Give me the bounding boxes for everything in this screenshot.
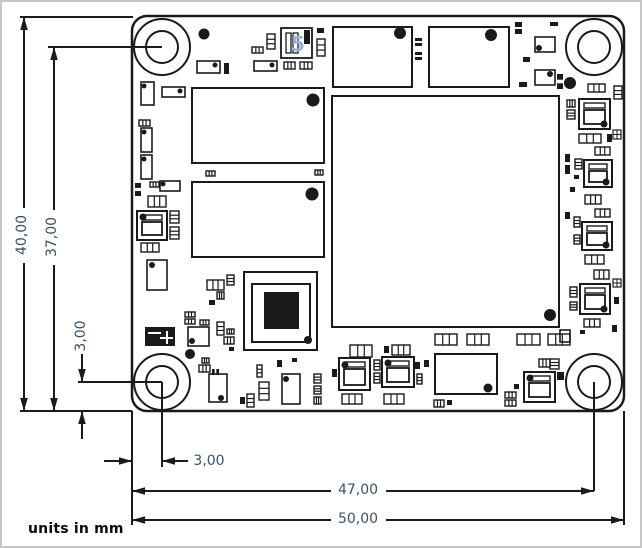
- pin1-dot: [149, 262, 155, 268]
- pin1-dot: [547, 71, 553, 77]
- pin1-dot: [304, 336, 312, 344]
- component-pad: [515, 22, 522, 27]
- via-dot: [185, 349, 195, 359]
- pin1-dot: [394, 27, 406, 39]
- ic-marking-text: 5: [291, 32, 305, 56]
- pin1-dot: [544, 309, 556, 321]
- component-pad: [574, 175, 579, 179]
- dimension-hole-width-arrow: [581, 487, 594, 495]
- component-pad: [565, 154, 570, 162]
- component-pad: [240, 397, 245, 404]
- dimension-overall-width-arrow: [132, 516, 145, 524]
- component-pad: [514, 384, 519, 389]
- component-pad: [216, 369, 219, 375]
- component-pad: [550, 22, 558, 26]
- component-pad: [447, 400, 452, 405]
- pin1-dot: [218, 395, 224, 401]
- component-pad: [515, 29, 522, 34]
- component-pad: [224, 63, 229, 74]
- pcb-dimension-drawing: 540,0037,003,003,0047,0050,00 units in m…: [0, 0, 642, 548]
- component-pad: [415, 52, 422, 55]
- dimension-overall-width-arrow: [611, 516, 624, 524]
- component-pad: [612, 325, 617, 332]
- pin1-dot: [603, 242, 610, 249]
- pin1-dot: [140, 214, 147, 221]
- component-pad: [415, 57, 422, 60]
- mounting-hole-top-right-bore: [578, 31, 610, 63]
- pin1-dot: [484, 384, 493, 393]
- dimension-hole-offset-vertical-arrow: [78, 369, 86, 382]
- pin1-dot: [161, 182, 166, 187]
- pcb-drawing-canvas: 540,0037,003,003,0047,0050,00: [2, 2, 642, 548]
- component-pad: [607, 134, 612, 142]
- dimension-label-overall-height: 40,00: [14, 215, 30, 255]
- units-note: units in mm: [28, 521, 124, 537]
- via-dot: [564, 77, 576, 89]
- pin1-dot: [142, 84, 147, 89]
- component-pad: [580, 330, 585, 334]
- component-pad: [209, 300, 215, 305]
- component-pad: [415, 38, 422, 41]
- component-pad: [292, 358, 297, 362]
- component-pad: [332, 369, 337, 377]
- component-pad: [317, 28, 324, 33]
- pin1-dot: [213, 63, 218, 68]
- component-pad: [557, 372, 564, 380]
- component-pad: [570, 187, 575, 192]
- component-pad: [424, 360, 429, 367]
- component-pad: [565, 165, 570, 174]
- component-pad: [212, 369, 215, 375]
- dimension-hole-height-arrow: [50, 398, 58, 411]
- component-pad: [135, 183, 141, 188]
- pin1-dot: [306, 188, 319, 201]
- component-pad: [415, 362, 420, 369]
- component-processor-die: [264, 292, 299, 329]
- dimension-label-hole-offset-vertical: 3,00: [73, 320, 89, 351]
- pin1-dot: [601, 306, 608, 313]
- dimension-hole-offset-vertical-arrow: [78, 411, 86, 424]
- dimension-overall-height-arrow: [20, 398, 28, 411]
- dimension-hole-height-arrow: [50, 47, 58, 60]
- component-pad: [519, 82, 527, 87]
- pin1-dot: [283, 376, 289, 382]
- dimension-label-overall-width: 50,00: [338, 511, 378, 527]
- dimension-label-hole-height: 37,00: [44, 217, 60, 257]
- pin1-dot: [603, 179, 610, 186]
- pin1-dot: [307, 94, 320, 107]
- pin1-dot: [385, 360, 392, 367]
- pin1-dot: [142, 157, 147, 162]
- component-switch: [145, 327, 175, 346]
- component-pad: [557, 83, 563, 89]
- component-pad: [614, 297, 619, 304]
- pin1-dot: [527, 375, 534, 382]
- pin1-dot: [178, 89, 183, 94]
- component-pad: [565, 212, 570, 219]
- dimension-hole-width-arrow: [132, 487, 145, 495]
- component-pad: [277, 360, 282, 367]
- pin1-dot: [536, 45, 542, 51]
- pin1-dot: [142, 130, 147, 135]
- pin1-dot: [270, 63, 275, 68]
- component-pad: [229, 347, 234, 351]
- dimension-label-hole-width: 47,00: [338, 482, 378, 498]
- dimension-hole-offset-horizontal-arrow: [119, 457, 132, 465]
- dimension-overall-height-arrow: [20, 17, 28, 30]
- via-dot: [199, 29, 210, 40]
- component-pad: [135, 191, 141, 196]
- component-pad: [415, 43, 422, 46]
- dimension-label-hole-offset-horizontal: 3,00: [193, 453, 224, 469]
- dimension-hole-offset-horizontal-arrow: [162, 457, 175, 465]
- pin1-dot: [189, 338, 195, 344]
- pin1-dot: [342, 362, 349, 369]
- component-pad: [557, 74, 563, 80]
- component-pad: [523, 57, 530, 62]
- pin1-dot: [485, 29, 497, 41]
- component-pad: [384, 346, 389, 353]
- pin1-dot: [601, 121, 608, 128]
